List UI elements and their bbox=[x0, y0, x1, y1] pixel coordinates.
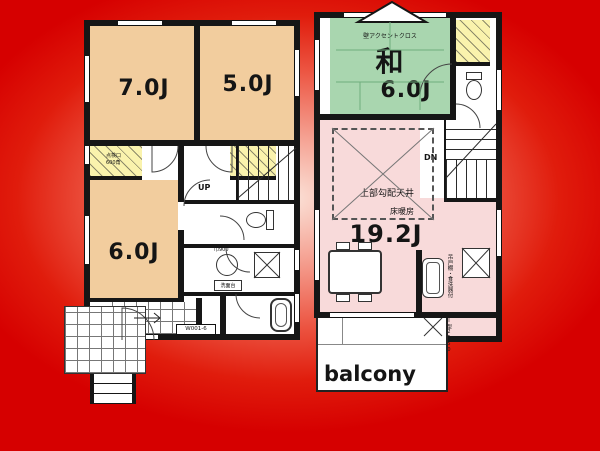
chair-icon bbox=[358, 242, 372, 250]
toilet-icon bbox=[246, 212, 266, 228]
room-5j-label: 5.0J bbox=[208, 74, 288, 96]
chair-icon bbox=[336, 242, 350, 250]
window bbox=[496, 210, 502, 256]
balcony-line bbox=[342, 318, 343, 344]
sloped-ceiling-outline: 上部勾配天井 床暖房 bbox=[332, 128, 434, 220]
stairs-down-treads bbox=[446, 160, 496, 198]
refrigerator-space-icon bbox=[462, 248, 490, 278]
entry-door-code: W001-6 bbox=[176, 324, 216, 335]
window bbox=[294, 294, 300, 322]
basin-note: 巾900 bbox=[214, 248, 229, 253]
entrance-steps bbox=[90, 374, 136, 404]
closet-note-line2: 600角 bbox=[106, 161, 121, 166]
stairs-up-label: UP bbox=[198, 184, 210, 192]
porch-tiles bbox=[64, 306, 146, 374]
washbasin-icon bbox=[216, 254, 238, 276]
balcony-sliding-door bbox=[330, 312, 414, 318]
tatami-room-name: 和 bbox=[330, 48, 450, 76]
vanity-note: 洗面台 bbox=[214, 280, 242, 291]
bathtub-inner bbox=[275, 303, 287, 327]
stairs-down-treads bbox=[446, 120, 496, 160]
floorplan-canvas: 7.0J 5.0J 点検口 600角 6.0J UP 巾900 洗面 bbox=[0, 0, 600, 451]
room-5j: 5.0J bbox=[200, 26, 294, 140]
wall bbox=[456, 62, 490, 66]
chair-icon bbox=[358, 294, 372, 302]
wall bbox=[220, 292, 226, 334]
tatami-room: 壁アクセントクロス 和 6.0J bbox=[330, 18, 450, 114]
window bbox=[84, 56, 90, 102]
toilet-tank-icon bbox=[266, 210, 274, 230]
window bbox=[314, 210, 320, 280]
window bbox=[314, 40, 320, 90]
chair-icon bbox=[336, 294, 350, 302]
roof-triangle-icon bbox=[354, 0, 430, 24]
room-7j: 7.0J bbox=[90, 26, 194, 140]
wall bbox=[184, 292, 294, 296]
door-gap bbox=[178, 202, 184, 230]
window bbox=[118, 20, 162, 26]
toilet-icon bbox=[466, 80, 482, 100]
room-7j-label: 7.0J bbox=[104, 78, 184, 100]
first-floor-plan: 7.0J 5.0J 点検口 600角 6.0J UP 巾900 洗面 bbox=[84, 20, 300, 340]
stairs-up bbox=[236, 146, 294, 200]
wall bbox=[184, 200, 294, 204]
sink-basin bbox=[426, 262, 440, 294]
second-floor-plan: 壁アクセントクロス 和 6.0J DN 上部勾配天井 床暖房 19.2J bbox=[314, 12, 502, 318]
kitchen-sink-icon bbox=[422, 258, 444, 298]
floor-heating-note: 床暖房 bbox=[390, 208, 414, 216]
window bbox=[232, 20, 276, 26]
washing-machine-icon bbox=[254, 252, 280, 278]
kitchen-note: 吊戸棚・食洗器付 bbox=[446, 254, 452, 314]
accent-wall-note: 壁アクセントクロス bbox=[350, 34, 430, 40]
window bbox=[84, 216, 90, 264]
window bbox=[496, 70, 502, 110]
closet-hatch bbox=[456, 20, 490, 62]
balcony-line bbox=[318, 344, 446, 345]
window bbox=[294, 50, 300, 96]
closet-note-line1: 点検口 bbox=[106, 154, 121, 159]
tatami-room-area: 6.0J bbox=[346, 80, 466, 102]
closet-hatch: 点検口 600角 bbox=[90, 146, 142, 176]
toilet-tank-icon bbox=[466, 72, 482, 80]
room-6j: 6.0J bbox=[90, 180, 178, 298]
dining-table-icon bbox=[328, 250, 382, 294]
wall bbox=[444, 120, 446, 198]
room-6j-label: 6.0J bbox=[94, 242, 174, 264]
balcony: balcony bbox=[316, 318, 448, 392]
wall bbox=[184, 244, 294, 248]
window bbox=[84, 146, 90, 164]
balcony-label: balcony bbox=[324, 364, 416, 385]
sloped-ceiling-note: 上部勾配天井 bbox=[342, 190, 432, 199]
ldk-label: 19.2J bbox=[336, 222, 436, 246]
wall bbox=[444, 198, 496, 202]
bathtub-icon bbox=[270, 298, 292, 332]
window bbox=[294, 250, 300, 270]
